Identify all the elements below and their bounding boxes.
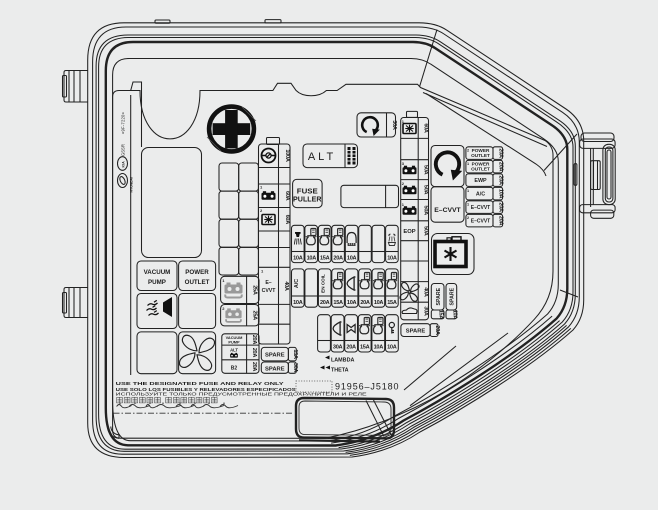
svg-text:VACUUM: VACUUM — [144, 269, 171, 276]
svg-text:20A: 20A — [346, 345, 356, 351]
svg-text:10A: 10A — [293, 256, 303, 262]
svg-text:15A: 15A — [360, 345, 370, 351]
svg-text:15A: 15A — [387, 300, 397, 306]
svg-text:20A: 20A — [497, 175, 503, 185]
svg-text:SPARE: SPARE — [265, 366, 285, 372]
svg-text:PUMP: PUMP — [148, 279, 166, 286]
svg-text:EOP: EOP — [403, 229, 415, 235]
svg-text:10A: 10A — [307, 256, 317, 262]
svg-text:30A: 30A — [333, 345, 343, 351]
svg-text:10A: 10A — [374, 300, 384, 306]
svg-text:20A: 20A — [251, 335, 257, 345]
svg-text:10A: 10A — [347, 256, 357, 262]
svg-text:100A: 100A — [284, 149, 290, 161]
svg-text:60A: 60A — [284, 215, 290, 225]
svg-text:20A: 20A — [251, 362, 257, 372]
svg-text:E–CVVT: E–CVVT — [434, 207, 461, 214]
svg-text:B2: B2 — [231, 365, 238, 371]
svg-text:60A: 60A — [284, 191, 290, 201]
svg-text:«9F-7220»: «9F-7220» — [121, 111, 126, 134]
svg-text:POWER: POWER — [185, 269, 209, 276]
svg-text:CVVT: CVVT — [262, 288, 277, 294]
svg-text:E–CVVT: E–CVVT — [471, 219, 490, 225]
svg-text:40A: 40A — [283, 281, 289, 291]
svg-text:1: 1 — [467, 189, 469, 193]
svg-text:20A: 20A — [497, 216, 503, 226]
svg-text:50A: 50A — [422, 226, 428, 236]
svg-text:30A: 30A — [391, 120, 397, 130]
svg-text:FUSE: FUSE — [297, 189, 318, 196]
svg-text:15A: 15A — [320, 256, 330, 262]
svg-text:15A: 15A — [333, 300, 343, 306]
svg-text:EWP: EWP — [474, 178, 487, 184]
svg-text:2: 2 — [467, 149, 469, 153]
svg-text:SPARE: SPARE — [450, 287, 456, 305]
svg-text:THETA: THETA — [331, 368, 349, 374]
svg-text:OUTLET: OUTLET — [471, 166, 490, 171]
svg-text:USE THE DESIGNATED FUSE AND RE: USE THE DESIGNATED FUSE AND RELAY ONLY — [116, 381, 285, 387]
svg-text:20A: 20A — [497, 148, 503, 158]
svg-text:10A: 10A — [293, 300, 303, 306]
svg-text:E–CVVT: E–CVVT — [471, 205, 490, 211]
svg-text:SPARE: SPARE — [265, 353, 285, 359]
svg-text:2: 2 — [467, 216, 469, 220]
svg-text:30A: 30A — [292, 363, 298, 373]
svg-text:1: 1 — [467, 162, 469, 166]
svg-text:50A: 50A — [422, 185, 428, 195]
svg-text:SPARE: SPARE — [436, 287, 442, 305]
svg-text:E–: E– — [265, 280, 271, 286]
svg-text:OUTLET: OUTLET — [471, 153, 490, 158]
svg-text:50A: 50A — [422, 165, 428, 175]
svg-text:PULLER: PULLER — [293, 197, 322, 204]
svg-text:KIA: KIA — [122, 161, 126, 168]
svg-text:10A: 10A — [387, 345, 397, 351]
svg-text:20A: 20A — [251, 348, 257, 358]
svg-text:10A: 10A — [451, 310, 457, 320]
svg-text:25A: 25A — [252, 311, 258, 321]
svg-text:OUTLET: OUTLET — [185, 279, 210, 286]
svg-text:40A: 40A — [422, 287, 428, 297]
svg-text:60A: 60A — [422, 123, 428, 133]
svg-text:LAMBDA: LAMBDA — [331, 358, 354, 364]
svg-text:20A: 20A — [333, 256, 343, 262]
svg-text:10A: 10A — [387, 256, 397, 262]
svg-text:91956–J5180: 91956–J5180 — [335, 382, 399, 392]
svg-text:15A: 15A — [438, 310, 444, 320]
svg-text:10A: 10A — [347, 300, 357, 306]
svg-text:10A: 10A — [497, 189, 503, 199]
svg-text:25A: 25A — [252, 285, 258, 295]
svg-text:20A: 20A — [497, 162, 503, 172]
svg-text:ALT: ALT — [308, 151, 336, 163]
svg-text:15A: 15A — [292, 349, 298, 359]
svg-text:ALT: ALT — [230, 347, 238, 352]
svg-text:20A: 20A — [434, 325, 440, 335]
svg-text:A/C: A/C — [476, 192, 485, 198]
svg-text:1: 1 — [467, 203, 469, 207]
svg-text:50A: 50A — [422, 206, 428, 216]
svg-text:20A: 20A — [320, 300, 330, 306]
svg-text:A/C: A/C — [294, 279, 300, 288]
svg-text:20A: 20A — [360, 300, 370, 306]
svg-text:PUMP: PUMP — [228, 339, 240, 344]
svg-text:EN COIL: EN COIL — [321, 274, 326, 293]
svg-text:SPARE: SPARE — [406, 329, 426, 335]
svg-text:10A: 10A — [374, 345, 384, 351]
svg-text:ИСПОЛЬЗУЙТЕ ТОЛЬКО ПРЕДУСМОТРЕ: ИСПОЛЬЗУЙТЕ ТОЛЬКО ПРЕДУСМОТРЕННЫЕ ПРЕДО… — [116, 392, 367, 397]
svg-text:HYUNDAI: HYUNDAI — [130, 177, 134, 193]
svg-text:GSSR: GSSR — [121, 144, 126, 156]
svg-text:30A: 30A — [422, 306, 428, 316]
svg-text:20A: 20A — [497, 202, 503, 212]
